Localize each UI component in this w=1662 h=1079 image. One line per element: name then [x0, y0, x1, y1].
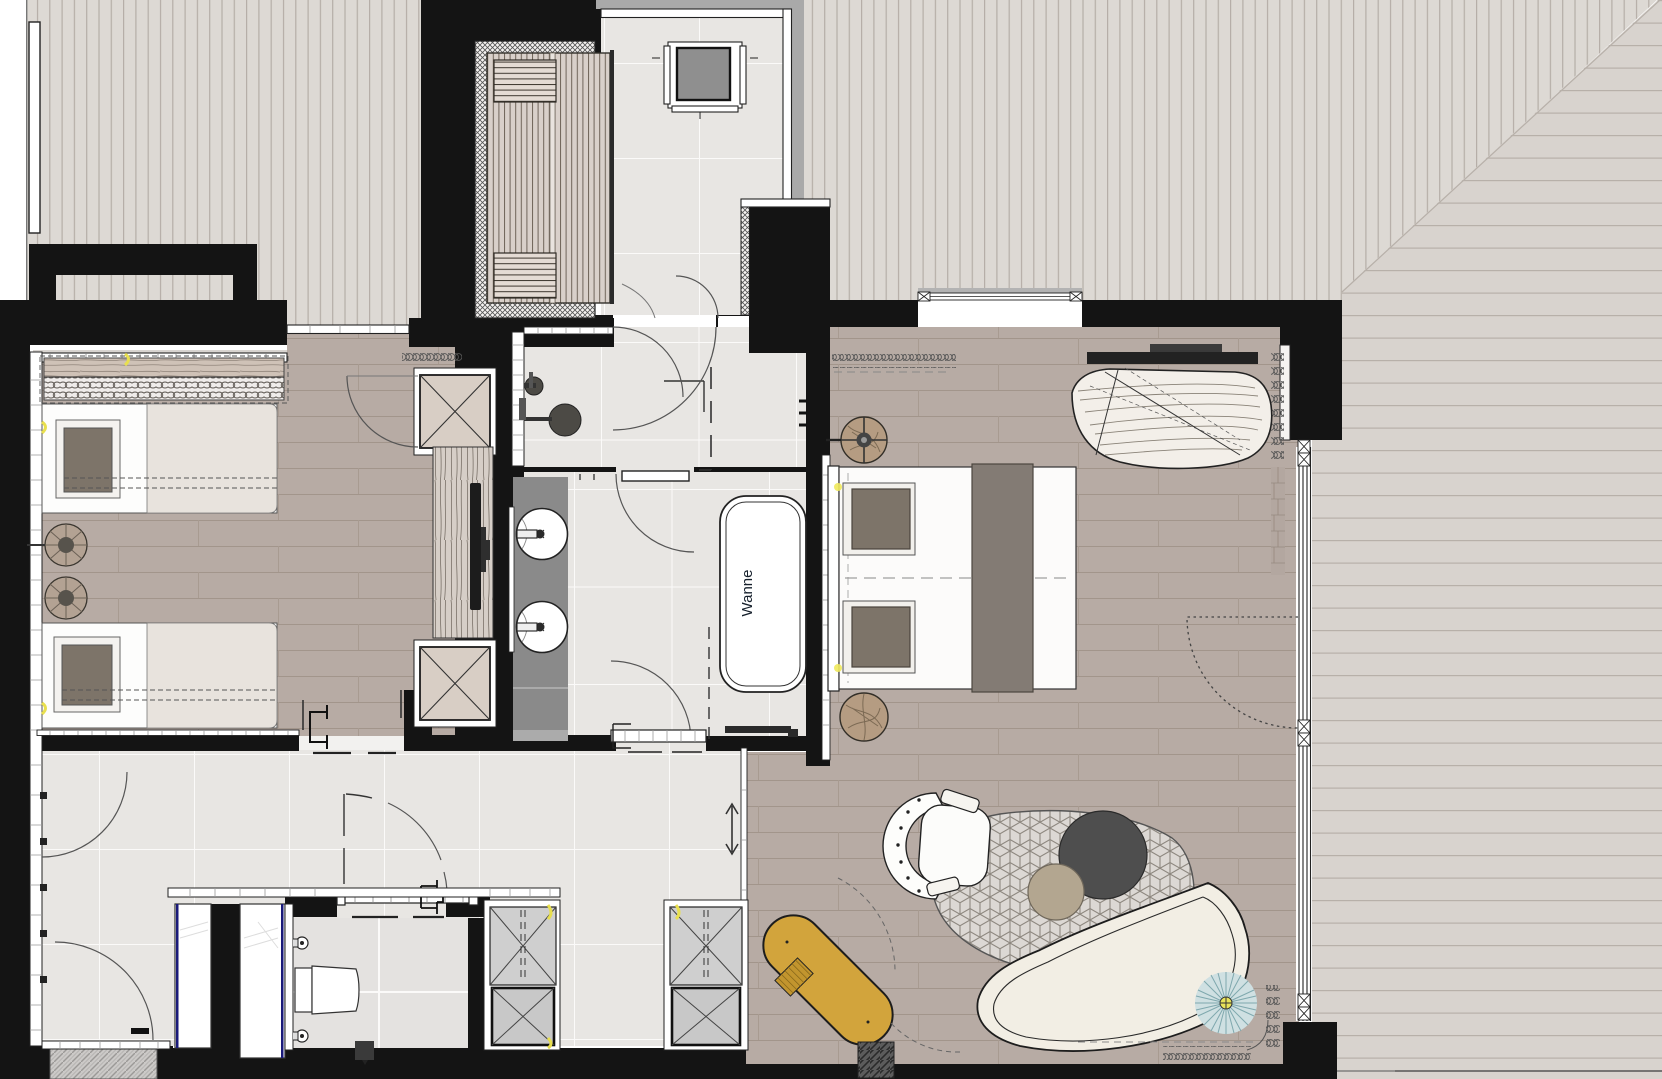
svg-text:Wanne: Wanne [739, 570, 756, 617]
